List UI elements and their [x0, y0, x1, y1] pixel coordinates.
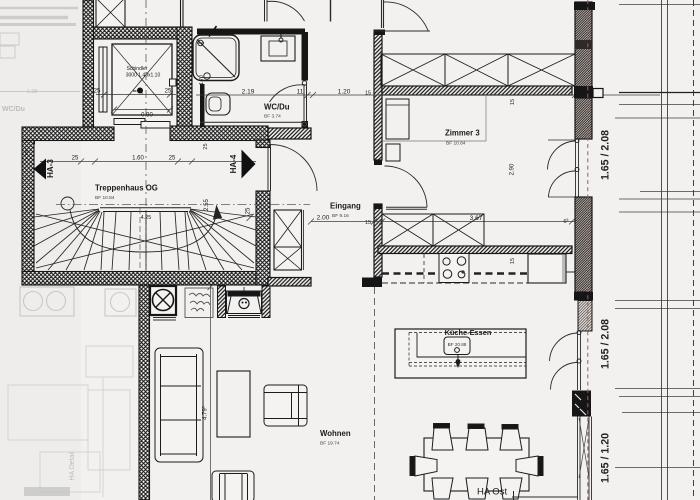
- svg-text:Schindler: Schindler: [127, 66, 148, 72]
- svg-text:600: 600: [25, 149, 29, 155]
- svg-text:15: 15: [365, 91, 371, 97]
- svg-text:HA-4: HA-4: [229, 154, 238, 173]
- svg-text:Zimmer 3: Zimmer 3: [445, 129, 480, 138]
- svg-text:Eingang: Eingang: [330, 202, 361, 211]
- svg-text:1.70: 1.70: [199, 75, 205, 85]
- svg-text:25: 25: [246, 207, 252, 214]
- svg-text:11: 11: [297, 89, 304, 96]
- svg-text:WC/Du: WC/Du: [264, 103, 290, 112]
- svg-text:25: 25: [203, 143, 209, 149]
- svg-text:HA-3: HA-3: [46, 159, 55, 178]
- svg-text:1.28: 1.28: [27, 89, 38, 95]
- svg-text:3000 1.40x1.10: 3000 1.40x1.10: [126, 73, 161, 79]
- svg-text:4.795: 4.795: [202, 406, 209, 420]
- svg-text:Küche-Essen: Küche-Essen: [445, 328, 492, 337]
- svg-text:BF 19.74: BF 19.74: [320, 441, 340, 447]
- svg-text:25: 25: [94, 89, 101, 95]
- svg-text:BF 20.88: BF 20.88: [448, 342, 467, 347]
- svg-text:2.90: 2.90: [510, 163, 516, 175]
- svg-text:HA Ost: HA Ost: [477, 487, 507, 498]
- svg-text:BF 10.84: BF 10.84: [446, 141, 466, 147]
- svg-text:1.65 / 2.08: 1.65 / 2.08: [600, 130, 612, 180]
- svg-text:1.65 / 2.08: 1.65 / 2.08: [600, 319, 612, 369]
- svg-text:15: 15: [365, 220, 371, 226]
- svg-text:BF 9.16: BF 9.16: [332, 213, 349, 219]
- svg-text:WC/Du: WC/Du: [2, 106, 25, 113]
- svg-text:25: 25: [72, 156, 79, 162]
- svg-text:1.20: 1.20: [338, 89, 351, 96]
- svg-text:2.00: 2.00: [317, 215, 330, 222]
- svg-text:1.60: 1.60: [132, 156, 144, 162]
- svg-text:BF 10.84: BF 10.84: [95, 195, 115, 201]
- svg-text:Wohnen: Wohnen: [320, 429, 351, 438]
- svg-text:BF 3.74: BF 3.74: [264, 114, 281, 120]
- svg-text:4.25: 4.25: [141, 215, 152, 221]
- svg-text:15: 15: [510, 99, 516, 105]
- svg-text:1.65 / 1.20: 1.65 / 1.20: [600, 433, 612, 483]
- svg-text:Treppenhaus OG: Treppenhaus OG: [95, 184, 158, 193]
- svg-text:25: 25: [169, 156, 176, 162]
- svg-text:HA Detail: HA Detail: [69, 451, 76, 481]
- svg-text:0.90: 0.90: [141, 113, 153, 119]
- svg-text:15: 15: [510, 258, 516, 264]
- svg-text:25: 25: [165, 89, 172, 95]
- svg-text:2.19: 2.19: [242, 89, 255, 96]
